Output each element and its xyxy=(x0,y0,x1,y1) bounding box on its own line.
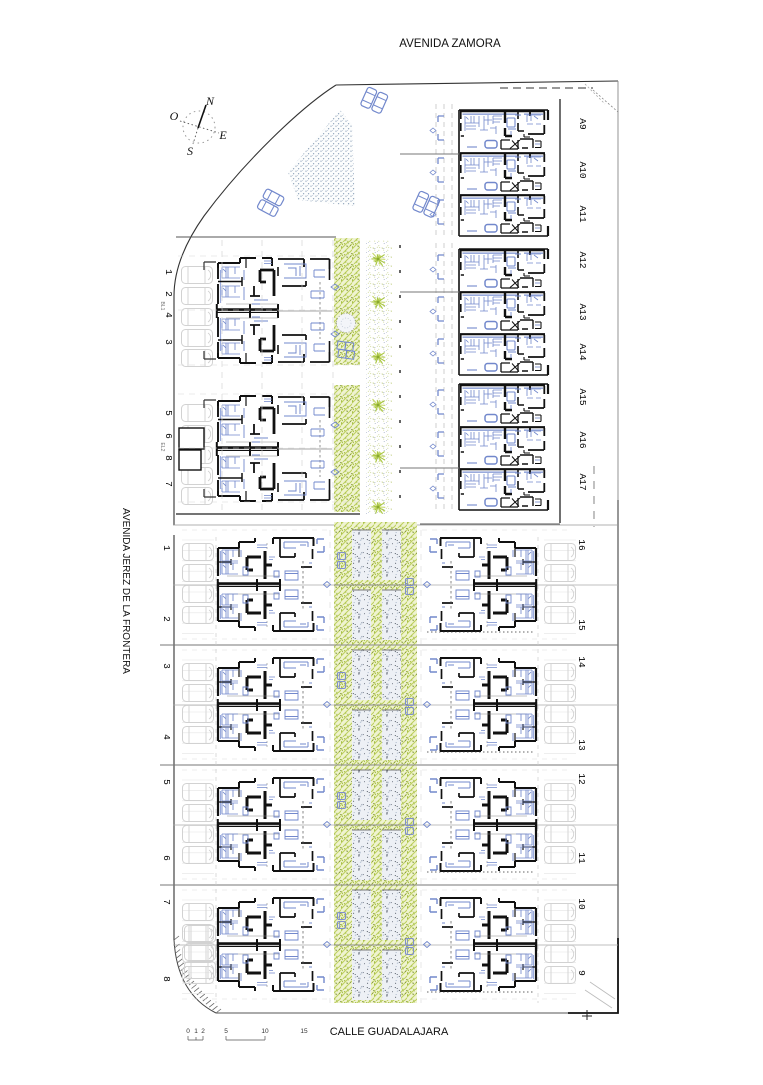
svg-text:1: 1 xyxy=(194,1028,198,1035)
svg-text:8: 8 xyxy=(161,976,172,982)
svg-text:16: 16 xyxy=(576,539,587,551)
svg-text:7: 7 xyxy=(161,899,172,905)
svg-text:5: 5 xyxy=(161,779,172,785)
svg-text:0: 0 xyxy=(186,1028,190,1035)
svg-text:7: 7 xyxy=(163,481,174,487)
svg-text:8: 8 xyxy=(163,455,174,461)
svg-text:12: 12 xyxy=(576,773,587,785)
svg-text:5: 5 xyxy=(163,410,174,416)
svg-text:A17: A17 xyxy=(577,473,588,490)
svg-text:1: 1 xyxy=(161,545,172,551)
svg-text:2: 2 xyxy=(161,616,172,622)
svg-text:A11: A11 xyxy=(577,205,588,222)
svg-text:11: 11 xyxy=(576,852,587,864)
svg-text:4: 4 xyxy=(161,734,172,740)
svg-text:N: N xyxy=(205,94,215,108)
svg-text:A16: A16 xyxy=(577,431,588,448)
svg-text:14: 14 xyxy=(576,656,587,668)
svg-text:EL2: EL2 xyxy=(159,443,165,452)
svg-text:A15: A15 xyxy=(577,388,588,405)
svg-text:5: 5 xyxy=(224,1028,228,1035)
svg-text:15: 15 xyxy=(300,1028,308,1035)
svg-text:AVENIDA ZAMORA: AVENIDA ZAMORA xyxy=(399,38,501,50)
svg-text:A10: A10 xyxy=(577,161,588,178)
svg-text:A14: A14 xyxy=(577,343,588,360)
svg-text:6: 6 xyxy=(163,433,174,439)
svg-text:2: 2 xyxy=(163,291,174,297)
svg-text:4: 4 xyxy=(163,312,174,318)
svg-text:AVENIDA JEREZ DE LA FRONTERA: AVENIDA JEREZ DE LA FRONTERA xyxy=(120,508,131,674)
svg-text:13: 13 xyxy=(576,739,587,751)
svg-text:A12: A12 xyxy=(577,251,588,268)
svg-text:O: O xyxy=(170,109,179,123)
svg-text:A9: A9 xyxy=(577,118,588,130)
svg-text:10: 10 xyxy=(261,1028,269,1035)
svg-text:10: 10 xyxy=(576,898,587,910)
svg-text:9: 9 xyxy=(576,970,587,976)
svg-text:BL1: BL1 xyxy=(159,302,165,311)
svg-text:1: 1 xyxy=(163,269,174,275)
svg-text:A13: A13 xyxy=(577,303,588,320)
svg-text:E: E xyxy=(218,128,227,142)
svg-text:S: S xyxy=(187,144,193,158)
svg-text:15: 15 xyxy=(576,619,587,631)
svg-text:CALLE GUADALAJARA: CALLE GUADALAJARA xyxy=(330,1026,449,1038)
svg-text:2: 2 xyxy=(201,1028,205,1035)
svg-text:6: 6 xyxy=(161,855,172,861)
svg-text:3: 3 xyxy=(163,339,174,345)
svg-text:3: 3 xyxy=(161,663,172,669)
